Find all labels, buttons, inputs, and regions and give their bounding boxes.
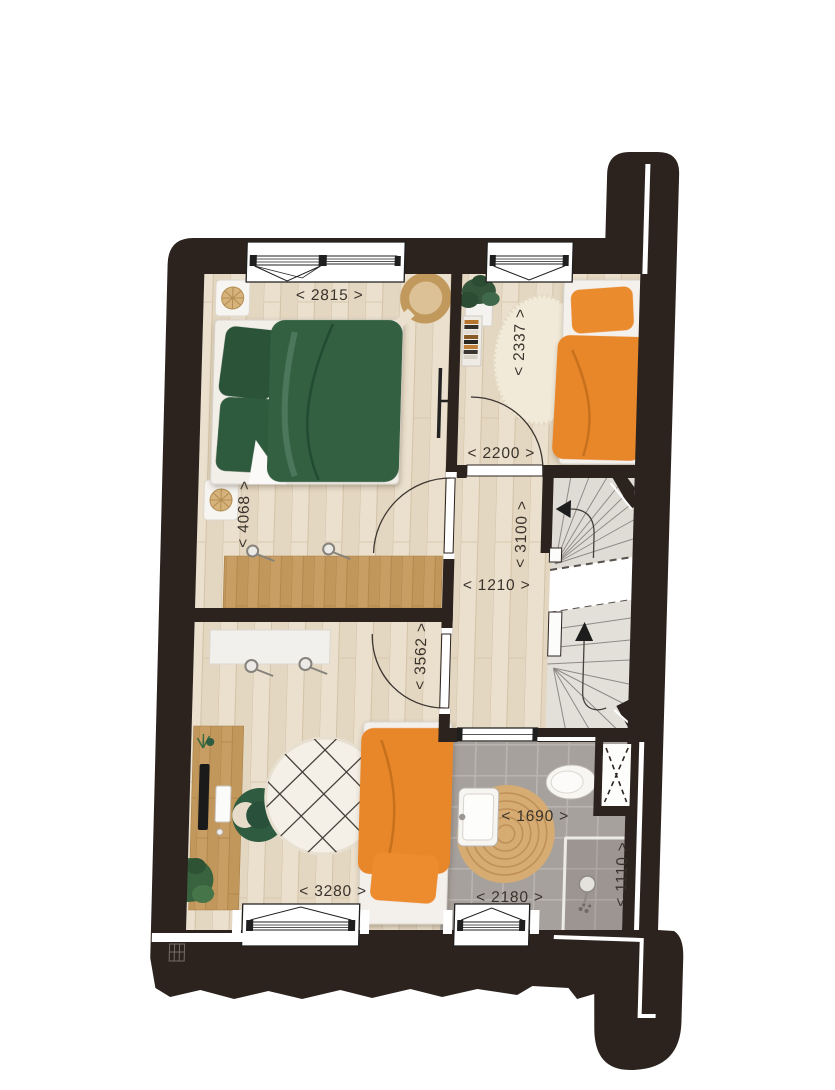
door-jamb	[441, 628, 452, 634]
single-bed	[551, 280, 649, 464]
wall-bedroom2-stairs	[543, 465, 637, 478]
dimension-label-bedroom1-width: < 2815 >	[296, 287, 364, 304]
door-leaf	[444, 478, 455, 553]
dimension-label-bedroom2-width: < 2200 >	[467, 445, 535, 462]
window-symbol	[246, 242, 405, 282]
window-symbol	[454, 904, 530, 946]
wall-shaft-bottom	[593, 806, 629, 816]
keyboard-icon	[215, 786, 231, 822]
plan-skew-group: < 2815 > < 4068 > < 2337 > < 2200 > < 31…	[145, 152, 706, 1070]
pillow	[369, 852, 439, 904]
wall-seam	[537, 737, 595, 741]
pillow	[570, 286, 634, 334]
dimension-label-bathroom-inner-width: < 1690 >	[501, 808, 569, 825]
door-jamb	[443, 553, 454, 559]
dimension-label-bathroom-depth: < 1110 >	[613, 841, 632, 906]
single-bed	[356, 722, 454, 924]
duvet-orange	[552, 335, 649, 461]
wall-bedroom1-bedroom3	[186, 608, 453, 622]
dimension-label-bedroom1-depth: < 4068 >	[235, 480, 254, 548]
window-symbol	[242, 904, 360, 946]
double-bed	[210, 320, 403, 484]
duvet-orange	[358, 728, 454, 874]
door-jamb	[439, 708, 450, 714]
floor-plan-svg: < 2815 > < 4068 > < 2337 > < 2200 > < 31…	[0, 0, 835, 1090]
floor-plan-canvas: < 2815 > < 4068 > < 2337 > < 2200 > < 31…	[0, 0, 835, 1090]
dimension-label-bathroom-width: < 2180 >	[476, 889, 544, 906]
door-leaf	[440, 634, 451, 708]
dimension-label-bedroom3-width: < 3280 >	[299, 883, 367, 900]
wall-bathroom-stub	[438, 728, 457, 742]
mouse-icon	[217, 829, 223, 835]
dimension-label-bedroom3-depth: < 3562 >	[412, 622, 431, 690]
dimension-label-landing-width: < 1210 >	[463, 577, 531, 594]
door-jamb	[446, 472, 457, 478]
table	[209, 630, 330, 664]
stair-newel-post	[548, 612, 562, 656]
shaft-dashed-x	[601, 744, 631, 806]
dimension-label-landing-depth: < 3100 >	[512, 500, 531, 568]
monitor-icon	[198, 764, 210, 830]
sink-basin	[463, 794, 494, 840]
sideboard	[223, 556, 442, 608]
window-symbol	[486, 242, 573, 282]
dimension-label-bedroom2-depth: < 2337 >	[511, 308, 530, 376]
toilet-bowl	[551, 771, 584, 793]
sill-seam	[152, 933, 243, 942]
door-leaf	[467, 465, 543, 476]
stairwell-wall-cap	[549, 548, 561, 562]
